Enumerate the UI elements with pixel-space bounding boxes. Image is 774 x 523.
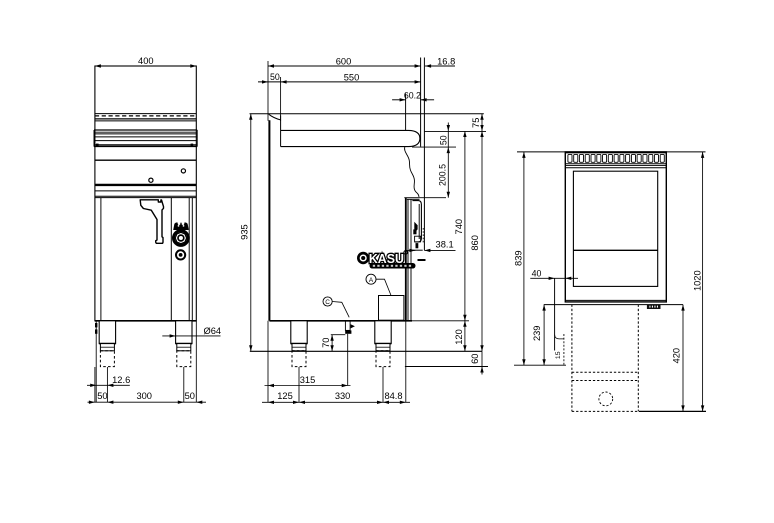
svg-text:400: 400 <box>138 56 154 66</box>
svg-text:12.6: 12.6 <box>112 375 130 385</box>
svg-text:50: 50 <box>270 72 280 82</box>
svg-text:84.8: 84.8 <box>384 391 402 401</box>
svg-text:239: 239 <box>532 326 542 342</box>
svg-text:740: 740 <box>454 219 464 235</box>
svg-text:1020: 1020 <box>693 270 703 291</box>
svg-text:60: 60 <box>470 354 480 364</box>
svg-text:A: A <box>369 277 374 284</box>
svg-text:200.5: 200.5 <box>438 164 448 186</box>
svg-text:860: 860 <box>470 235 480 251</box>
svg-text:70: 70 <box>321 338 331 348</box>
svg-text:550: 550 <box>344 72 360 82</box>
svg-text:50: 50 <box>438 135 448 145</box>
svg-text:38.1: 38.1 <box>436 240 454 250</box>
svg-text:330: 330 <box>335 391 351 401</box>
svg-text:315: 315 <box>300 375 316 385</box>
svg-text:40: 40 <box>532 269 542 279</box>
svg-text:935: 935 <box>240 224 250 240</box>
svg-text:120: 120 <box>454 329 464 345</box>
svg-text:125: 125 <box>277 391 293 401</box>
svg-text:15: 15 <box>555 351 562 359</box>
svg-text:839: 839 <box>513 250 523 266</box>
svg-text:420: 420 <box>671 348 681 364</box>
svg-text:16.8: 16.8 <box>437 56 455 66</box>
svg-text:75: 75 <box>471 118 481 128</box>
svg-text:300: 300 <box>136 391 152 401</box>
svg-text:600: 600 <box>336 56 352 66</box>
svg-text:C: C <box>325 299 330 306</box>
svg-text:Ø64: Ø64 <box>204 326 222 336</box>
svg-text:60.2: 60.2 <box>404 91 421 101</box>
svg-text:50: 50 <box>185 391 195 401</box>
svg-text:50: 50 <box>97 391 107 401</box>
